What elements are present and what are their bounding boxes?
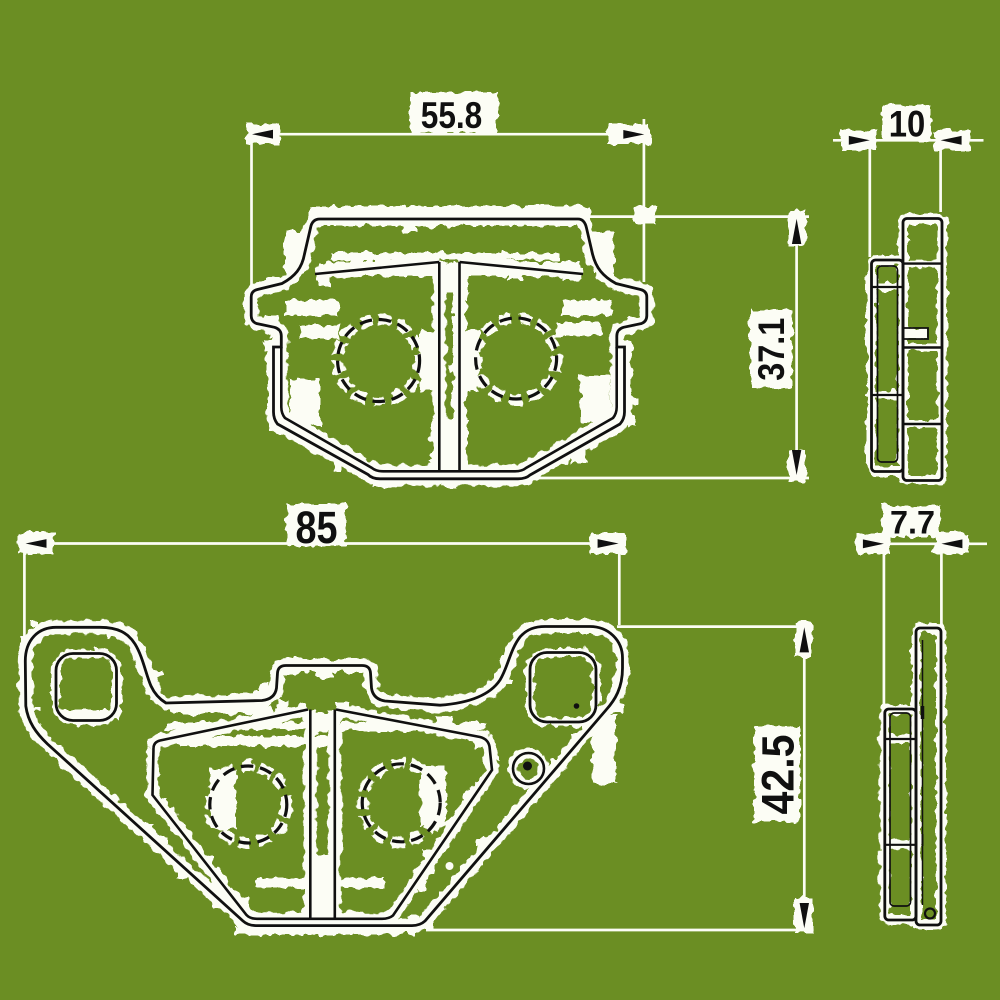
svg-text:10: 10 [889,103,926,145]
svg-text:7.7: 7.7 [890,505,935,541]
svg-text:37.1: 37.1 [750,318,792,381]
svg-text:85: 85 [296,502,338,553]
svg-text:42.5: 42.5 [753,735,804,815]
svg-text:55.8: 55.8 [421,94,483,136]
